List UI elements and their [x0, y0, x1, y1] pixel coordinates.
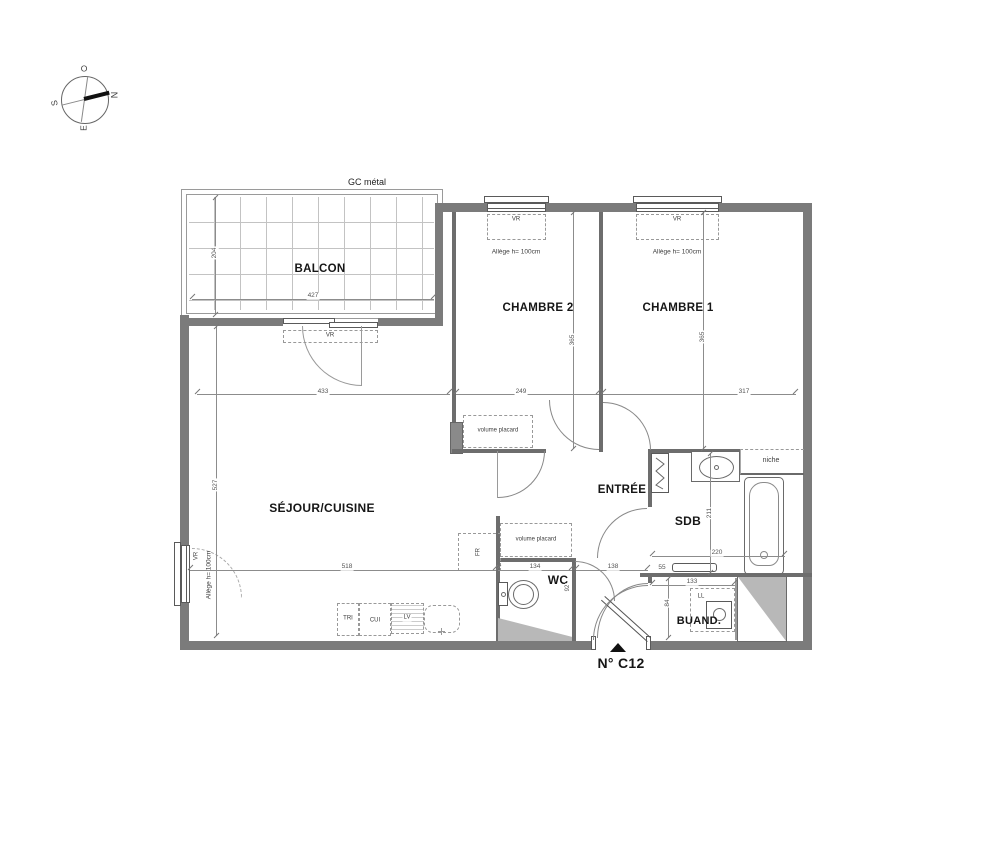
sill-note-chambre2: Allège h= 100cm — [492, 248, 541, 255]
dim-laundry-width: 133 — [686, 579, 699, 586]
railing-label: GC métal — [348, 178, 386, 188]
balcony-door-swing-arc — [302, 326, 362, 386]
room-label-bedroom1: CHAMBRE 1 — [642, 302, 713, 314]
door-arc-chambre2 — [549, 400, 599, 450]
compass-label-east: E — [79, 125, 88, 131]
fridge-label: FR — [476, 548, 483, 556]
window-chambre1 — [636, 203, 719, 212]
shutter-label-chambre2: VR — [512, 217, 520, 224]
wall-top-segment — [546, 203, 636, 212]
dim-bedroom1-depth: 365 — [700, 331, 707, 344]
kitchen-sink-icon — [424, 605, 460, 633]
dim-bedroom1-width: 317 — [738, 389, 751, 396]
wall-balcony-living-segment — [378, 318, 443, 326]
wall-top-segment — [719, 203, 812, 212]
dim-wc-width: 134 — [529, 564, 542, 571]
wall-bottom-segment — [648, 641, 812, 650]
wc-shaft-shading — [498, 618, 572, 641]
room-label-entry: ENTRÉE — [598, 484, 646, 496]
partition-wc-top — [496, 558, 576, 562]
window-living — [181, 545, 190, 603]
balcony-door-open-leaf — [361, 326, 362, 386]
dim-balcony-width: 427 — [307, 293, 320, 300]
kitchen-tap-icon — [438, 631, 445, 632]
cooker-label: CUI — [370, 618, 380, 625]
dim-line-bedroom1-width — [603, 394, 796, 395]
dim-line-laundry-depth — [668, 578, 669, 638]
washbasin-drain-icon — [714, 465, 719, 470]
towel-radiator-icon — [651, 453, 669, 493]
shutter-label-chambre1: VR — [673, 217, 681, 224]
toilet-bowl-inner — [513, 584, 534, 605]
dim-line-bedroom2-width — [456, 394, 599, 395]
dim-balcony-depth: 204 — [212, 247, 219, 260]
bathtub-drain-icon — [760, 551, 768, 559]
floor-plan: O N S E GC métal BALCON 427 204 VR Allèg… — [0, 0, 1000, 857]
compass-label-north: N — [108, 92, 118, 99]
niche-label: niche — [763, 457, 780, 465]
dim-bedroom2-depth: 365 — [570, 334, 577, 347]
room-label-living: SÉJOUR/CUISINE — [269, 501, 375, 515]
dim-hall-width: 138 — [607, 564, 620, 571]
door-arc-hall — [498, 451, 545, 498]
dim-bath-depth: 211 — [707, 507, 714, 519]
closet-hall-label: volume placard — [475, 428, 521, 435]
dim-living-top: 433 — [317, 389, 330, 396]
compass-label-south: S — [50, 99, 60, 106]
balcony-door-leaf — [283, 318, 335, 324]
room-label-balcony: BALCON — [295, 263, 346, 275]
window-sill-living — [174, 542, 181, 606]
wall-left-segment — [180, 315, 189, 545]
window-sill-chambre1 — [633, 196, 722, 203]
partition-chambre2-chambre1 — [599, 212, 603, 402]
sill-note-living: Allège h= 100cm — [205, 551, 212, 600]
sorting-label: TRI — [343, 616, 353, 623]
wall-left-segment — [180, 603, 189, 650]
dishwasher-label: LV — [403, 615, 412, 622]
window-sill-chambre2 — [484, 196, 549, 203]
room-label-bathroom: SDB — [675, 514, 701, 528]
door-arc-sdb — [597, 508, 647, 558]
dim-wc-depth: 92 — [565, 584, 571, 593]
sill-note-chambre1: Allège h= 100cm — [653, 248, 702, 255]
wall-balcony-right — [435, 203, 443, 318]
wall-balcony-living-segment — [180, 318, 283, 326]
entrance-marker-triangle-icon — [610, 643, 626, 652]
room-label-bedroom2: CHAMBRE 2 — [502, 302, 573, 314]
compass-label-west: O — [81, 64, 88, 73]
dim-shelf: 55 — [657, 565, 666, 572]
washer-label: LL — [698, 594, 705, 601]
gaine-shaft — [737, 576, 787, 642]
wall-bottom-segment — [180, 641, 595, 650]
dim-bedroom2-width: 249 — [515, 389, 528, 396]
door-arc-chambre1 — [603, 402, 651, 450]
closet-wc-label: volume placard — [513, 537, 559, 544]
dim-laundry-depth: 84 — [665, 598, 672, 607]
toilet-tank-button — [501, 592, 506, 597]
window-chambre2 — [487, 203, 546, 212]
dim-line-bedroom2-depth — [573, 212, 574, 449]
unit-number-label: N° C12 — [597, 655, 644, 671]
room-label-laundry: BUAND. — [677, 615, 722, 627]
dim-living-height: 527 — [213, 479, 220, 492]
wall-right — [803, 203, 812, 650]
shutter-label-living: VR — [194, 552, 201, 560]
dim-living-width: 518 — [341, 564, 354, 571]
dim-bath-width: 220 — [711, 550, 724, 557]
